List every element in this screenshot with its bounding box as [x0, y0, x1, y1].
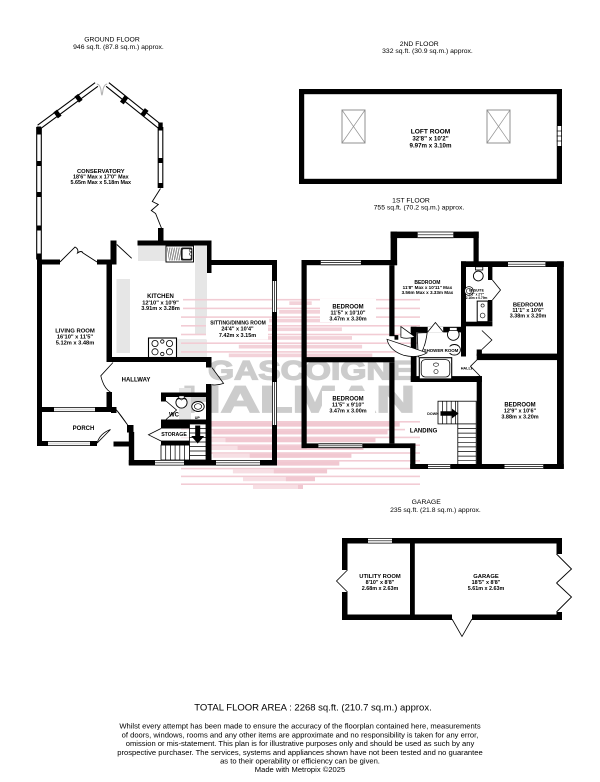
svg-text:3.47m x 3.00m: 3.47m x 3.00m	[329, 409, 366, 415]
svg-text:3.88m x 3.20m: 3.88m x 3.20m	[501, 414, 538, 420]
svg-text:5.12m x 3.48m: 5.12m x 3.48m	[56, 340, 95, 346]
svg-text:omission or mis-statement. Thi: omission or mis-statement. This plan is …	[126, 739, 475, 748]
svg-text:of doors, windows, rooms and a: of doors, windows, rooms and any other i…	[122, 730, 479, 739]
svg-text:755 sq.ft. (70.2 sq.m.) approx: 755 sq.ft. (70.2 sq.m.) approx.	[374, 204, 465, 211]
svg-text:GROUND FLOOR: GROUND FLOOR	[84, 36, 140, 43]
svg-text:SHOWER ROOM: SHOWER ROOM	[424, 348, 459, 353]
svg-text:TOTAL FLOOR AREA : 2268 sq.ft.: TOTAL FLOOR AREA : 2268 sq.ft. (210.7 sq…	[194, 703, 431, 714]
svg-text:7.42m x 3.15m: 7.42m x 3.15m	[219, 333, 256, 339]
svg-text:2.68m x 2.63m: 2.68m x 2.63m	[362, 586, 399, 592]
svg-text:GARAGE: GARAGE	[412, 499, 442, 506]
svg-text:9.97m x 3.10m: 9.97m x 3.10m	[410, 142, 452, 149]
svg-text:BEDROOM: BEDROOM	[332, 396, 363, 402]
svg-text:Made with Metropix ©2025: Made with Metropix ©2025	[255, 765, 345, 774]
svg-text:3.38m x 3.20m: 3.38m x 3.20m	[510, 313, 547, 319]
svg-text:2ND FLOOR: 2ND FLOOR	[400, 41, 439, 48]
svg-text:KITCHEN: KITCHEN	[147, 294, 174, 300]
svg-text:5.65m Max x 5.18m Max: 5.65m Max x 5.18m Max	[71, 180, 132, 186]
svg-text:5.61m x 2.63m: 5.61m x 2.63m	[468, 586, 505, 592]
svg-text:24'4" x 10'4": 24'4" x 10'4"	[221, 327, 254, 333]
svg-text:DOWN: DOWN	[427, 412, 439, 416]
svg-text:as to their operability or eff: as to their operability or efficiency ca…	[220, 757, 380, 766]
svg-text:STORAGE: STORAGE	[161, 432, 187, 438]
svg-text:UP: UP	[195, 416, 201, 420]
svg-text:946 sq.ft. (87.8 sq.m.) approx: 946 sq.ft. (87.8 sq.m.) approx.	[73, 44, 164, 51]
svg-text:332 sq.ft. (30.9 sq.m.) approx: 332 sq.ft. (30.9 sq.m.) approx.	[382, 48, 473, 55]
svg-text:Whilst every attempt has been: Whilst every attempt has been made to en…	[119, 722, 481, 731]
svg-text:LANDING: LANDING	[410, 428, 438, 434]
svg-text:SITTING/DINING ROOM: SITTING/DINING ROOM	[210, 320, 266, 326]
svg-text:PORCH: PORCH	[73, 426, 95, 432]
svg-text:11'5" x 9'10": 11'5" x 9'10"	[332, 402, 364, 408]
svg-text:HALMAN: HALMAN	[182, 378, 415, 420]
svg-text:3.56m Max x 3.33m Max: 3.56m Max x 3.33m Max	[402, 290, 454, 295]
svg-text:235 sq.ft. (21.8 sq.m.) approx: 235 sq.ft. (21.8 sq.m.) approx.	[390, 507, 481, 514]
svg-text:WC: WC	[169, 412, 180, 418]
svg-text:HALLWAY: HALLWAY	[122, 377, 151, 383]
svg-text:2.16m x 0.79m: 2.16m x 0.79m	[466, 296, 488, 300]
svg-text:3.47m x 3.30m: 3.47m x 3.30m	[329, 316, 366, 322]
svg-text:prospective purchaser. The ser: prospective purchaser. The services, sys…	[117, 748, 482, 757]
svg-text:32'8" x 10'2": 32'8" x 10'2"	[412, 135, 448, 142]
svg-text:3.91m x 3.28m: 3.91m x 3.28m	[141, 306, 180, 312]
